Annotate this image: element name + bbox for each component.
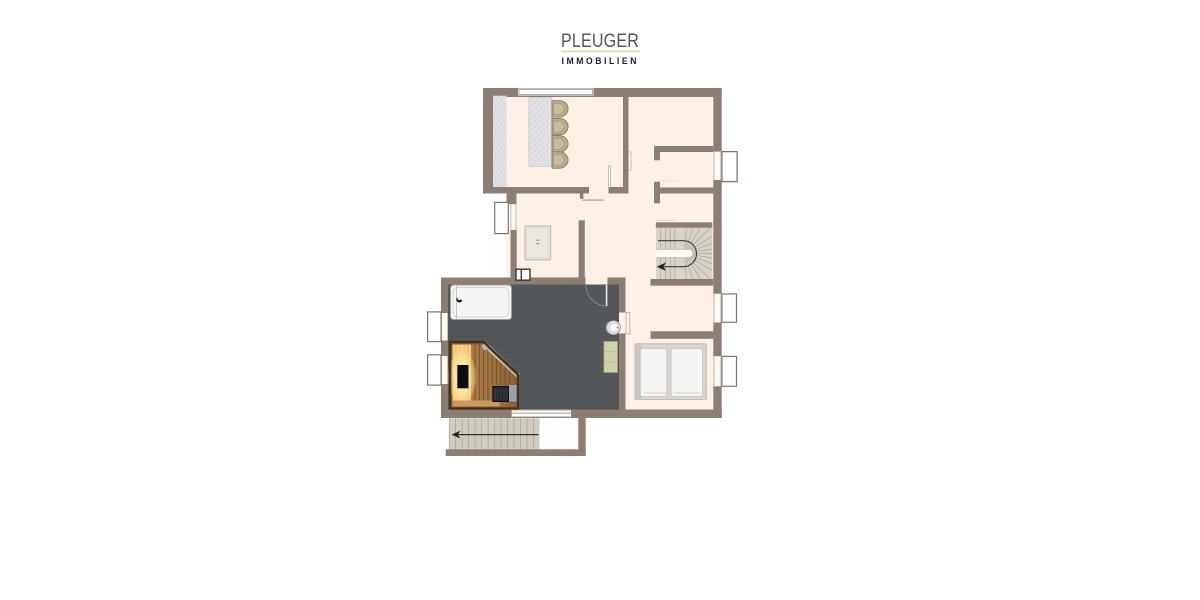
- svg-text:PLEUGER: PLEUGER: [561, 31, 639, 52]
- svg-text:IMMOBILIEN: IMMOBILIEN: [562, 56, 640, 66]
